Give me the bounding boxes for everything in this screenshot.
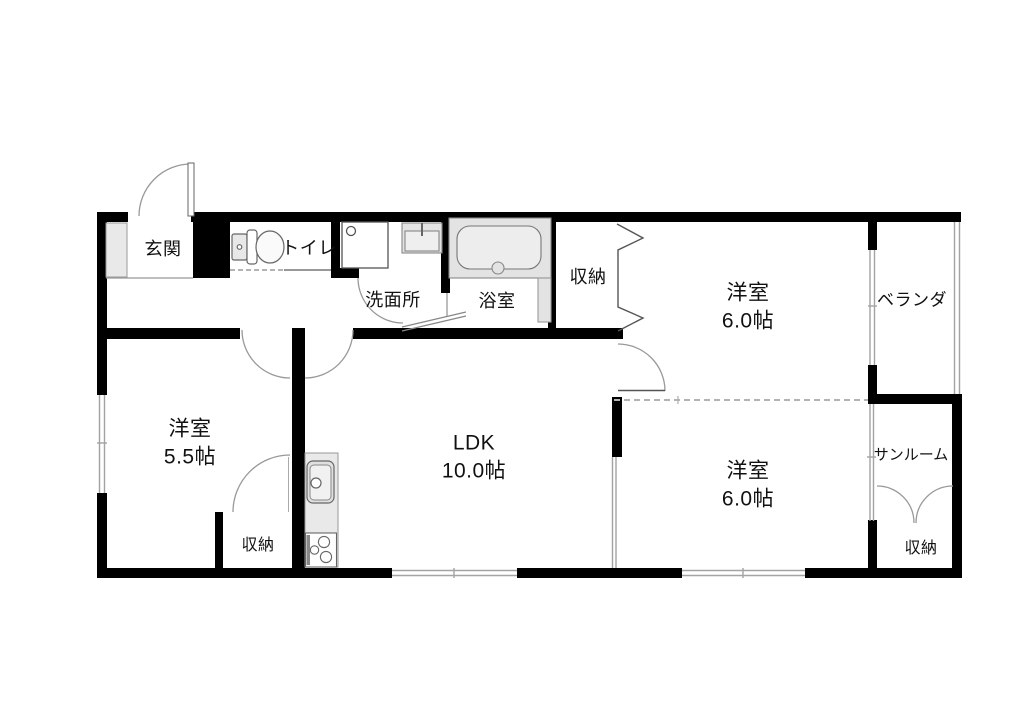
bedroom-w-door-arc [242, 330, 290, 378]
ldk-size: 10.0帖 [442, 457, 506, 485]
bedroom-se-size: 6.0帖 [722, 485, 774, 513]
ldk-door-arc [305, 330, 353, 378]
room-label-ldk: LDK 10.0帖 [442, 429, 506, 484]
ldk-name: LDK [442, 429, 506, 457]
room-label-bathroom: 浴室 [479, 290, 516, 313]
window-left-wall [97, 395, 107, 493]
wall-top-main [191, 212, 961, 222]
sliding-door-bedroom-veranda [868, 250, 877, 365]
closet-se-door-arc-right [916, 486, 953, 523]
wall-sunroom-closet-stub [868, 520, 877, 570]
bath-counter [538, 278, 551, 322]
ldk-bedroom-glass-partition [613, 457, 617, 568]
bedroom-ne-size: 6.0帖 [722, 307, 774, 335]
kitchen-counter [305, 453, 338, 567]
wall-ldk-bedroom-stub [612, 397, 622, 457]
wash-basin-icon [402, 223, 442, 253]
closet-hall-accordion-door [617, 224, 643, 331]
wall-left-lower [97, 493, 107, 578]
bedroom-w-size: 5.5帖 [164, 443, 216, 471]
closet-w-door-arc [233, 455, 290, 512]
wall-center-post [292, 328, 305, 570]
wall-closet-w-stub [215, 512, 223, 568]
room-label-closet-se: 収納 [904, 539, 937, 559]
veranda-railing [955, 222, 960, 394]
bedroom-ne-name: 洋室 [722, 279, 774, 307]
wall-bottom-mid [517, 568, 682, 578]
wall-ldk-north [353, 328, 623, 339]
room-label-closet-w: 収納 [241, 536, 274, 556]
room-label-bedroom-w: 洋室 5.5帖 [164, 415, 216, 470]
wall-veranda-stub-top [868, 222, 877, 250]
entrance-door-leaf [188, 163, 194, 216]
toilet-icon [232, 230, 284, 264]
kitchen-sink-icon [307, 461, 334, 503]
room-label-sunroom: サンルーム [874, 447, 949, 466]
room-label-bedroom-ne: 洋室 6.0帖 [722, 279, 774, 334]
window-bottom-bedroom-se [682, 568, 805, 578]
bedroom-se-name: 洋室 [722, 457, 774, 485]
window-bottom-ldk [392, 568, 517, 578]
shoe-cabinet-icon [106, 223, 127, 277]
room-label-bedroom-se: 洋室 6.0帖 [722, 457, 774, 512]
wall-sunroom-right [952, 394, 962, 578]
room-label-washroom: 洗面所 [365, 289, 421, 312]
room-label-toilet: トイレ [281, 237, 337, 260]
floor-plan: 玄関 トイレ 洗面所 浴室 収納 洋室 6.0帖 ベランダ 洋室 5.5帖 LD… [0, 0, 1031, 728]
wall-veranda-bottom [868, 394, 962, 404]
floor-plan-drawing [0, 0, 1031, 728]
wall-hall-south-left [97, 328, 240, 339]
washing-machine-pan-icon [342, 222, 388, 268]
room-label-genkan: 玄関 [145, 238, 182, 261]
wall-veranda-stub-bottom [868, 365, 877, 395]
bedroom-ne-door-arc [618, 344, 665, 391]
stove-icon [306, 533, 337, 567]
wall-bottom-left [97, 568, 392, 578]
room-label-veranda: ベランダ [877, 289, 947, 310]
bedroom-w-name: 洋室 [164, 415, 216, 443]
closet-se-door-arc-left [877, 486, 914, 523]
wall-bottom-right [805, 568, 962, 578]
wall-genkan-pillar [193, 215, 230, 278]
room-label-closet-hall: 収納 [570, 266, 607, 289]
wall-washroom-stub [331, 268, 359, 278]
entrance-door-arc [139, 164, 191, 216]
